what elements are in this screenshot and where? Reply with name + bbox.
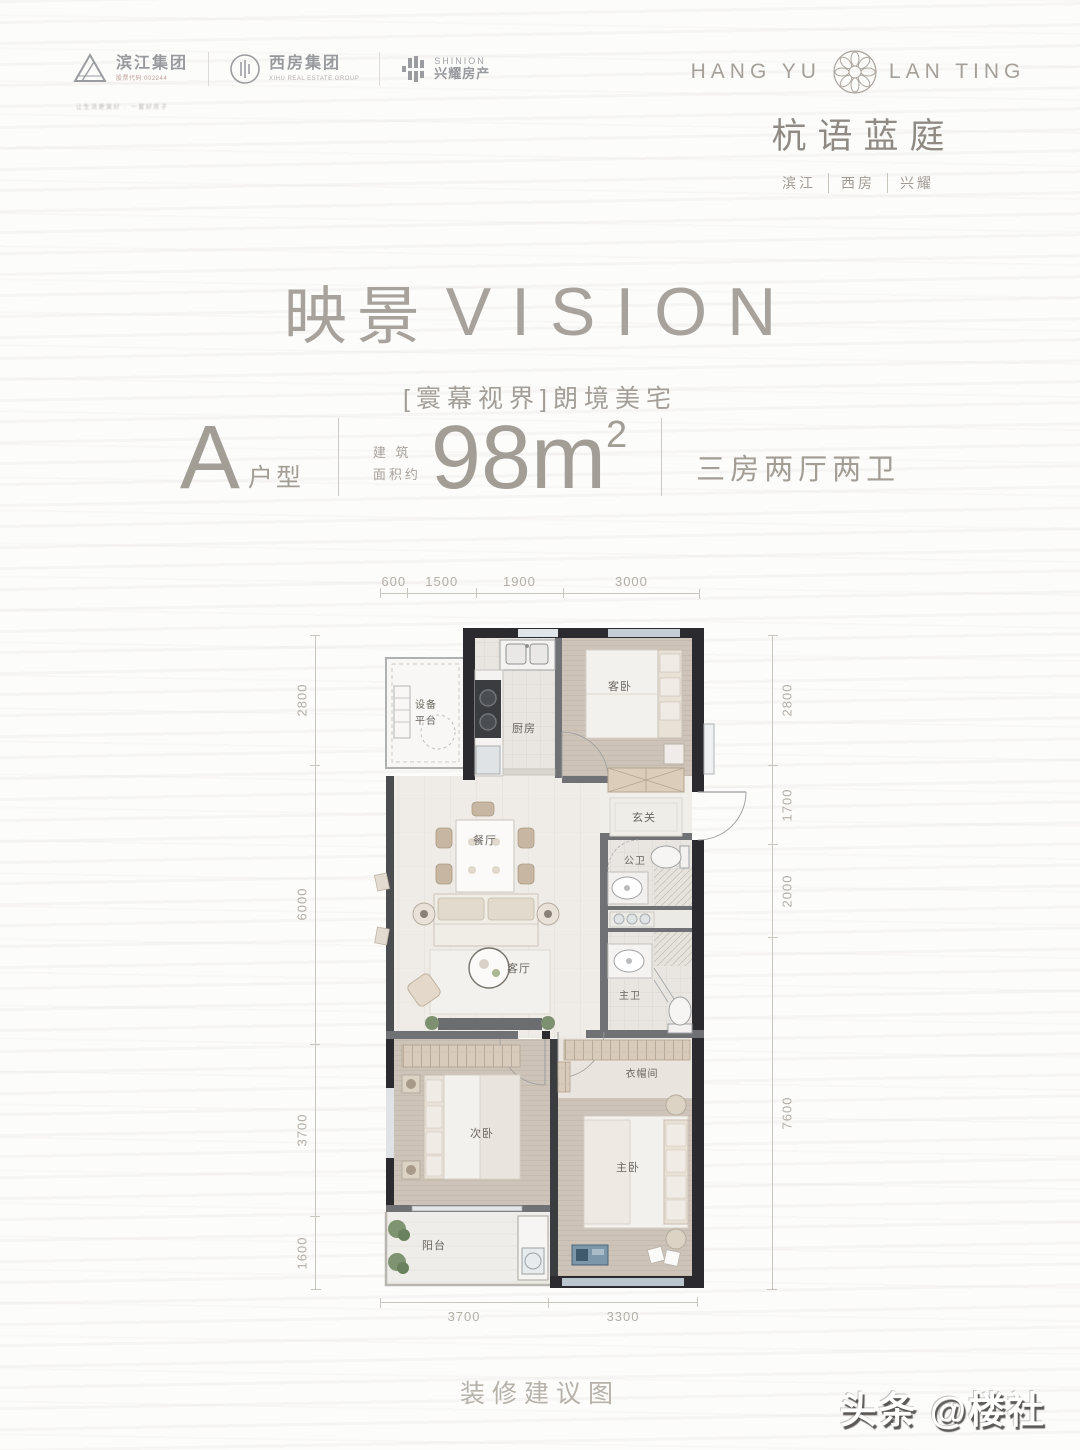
room-label-master-bath: 主卫 <box>619 990 641 1002</box>
dim-label: 3300 <box>548 1309 698 1324</box>
xifang-logo-icon <box>229 53 261 85</box>
brand-block: HANG YU LAN TING 杭语蓝庭 滨江 西房 兴耀 <box>688 48 1028 193</box>
room-label-living: 客厅 <box>507 961 531 975</box>
dim-segment: 3700 <box>288 1044 316 1216</box>
dim-label: 3700 <box>294 1113 309 1146</box>
dim-segment: 1600 <box>288 1216 316 1290</box>
dim-label: 1600 <box>294 1236 309 1269</box>
dim-segment: 3300 <box>548 1302 698 1330</box>
area-label-2: 面积约 <box>373 464 421 486</box>
brand-sub-item: 西房 <box>828 173 887 193</box>
dim-segment: 6000 <box>288 765 316 1044</box>
dim-segment: 1500 <box>407 566 476 594</box>
logo-divider <box>208 52 209 86</box>
logo-binjiang: 滨江集团 股票代码:002244 <box>72 52 188 86</box>
xifang-sub: XIHU REAL ESTATE GROUP <box>269 76 359 83</box>
brand-sub-item: 滨江 <box>770 173 828 193</box>
dim-label: 1500 <box>407 574 476 589</box>
room-label-closet: 衣帽间 <box>626 1067 659 1080</box>
watermark: 头条 @楼社 <box>840 1380 1046 1434</box>
dim-segment: 1700 <box>772 765 800 844</box>
logo-divider <box>379 52 380 86</box>
brand-sub-item: 兴耀 <box>887 173 946 193</box>
room-label-balcony: 阳台 <box>422 1238 446 1252</box>
room-label-equipment-1: 设备 <box>415 698 437 711</box>
dim-label: 6000 <box>294 888 309 921</box>
dim-segment: 3700 <box>380 1302 548 1330</box>
unit-type: A 户型 <box>180 422 304 496</box>
hero-title-en: VISION <box>446 273 797 351</box>
dim-label: 3700 <box>380 1309 548 1324</box>
unit-type-letter: A <box>180 422 240 496</box>
binjiang-tagline: 让生活更美好 · 一套好房子 <box>76 102 168 111</box>
xifang-name: 西房集团 <box>269 55 359 73</box>
dim-label: 1700 <box>779 788 794 821</box>
room-label-entry: 玄关 <box>632 810 656 824</box>
spec-row: A 户型 建 筑 面积约 98m 2 三房两厅两卫 <box>0 418 1080 496</box>
room-label-master-bedroom: 主卧 <box>616 1161 640 1174</box>
dim-chain-bottom: 37003300 <box>380 1302 698 1330</box>
unit-layout: 三房两厅两卫 <box>696 446 900 488</box>
binjiang-name: 滨江集团 <box>116 55 188 73</box>
dim-segment: 2000 <box>772 844 800 937</box>
dim-label: 2800 <box>779 684 794 717</box>
dim-segment: 3000 <box>563 566 700 594</box>
logo-shinion: SHINION 兴耀房产 <box>400 54 490 84</box>
room-label-public-bath: 公卫 <box>624 856 646 867</box>
room-label-equipment-2: 平台 <box>415 714 437 727</box>
spec-divider <box>338 418 339 496</box>
room-label-guest-bedroom: 客卧 <box>608 679 632 693</box>
area-sup: 2 <box>606 416 627 454</box>
poster: { "page": { "caption": "装修建议图", "waterma… <box>0 0 1080 1450</box>
developer-logos: 滨江集团 股票代码:002244 西房集团 XIHU REAL ESTATE G… <box>72 52 490 86</box>
equipment-platform <box>386 658 465 768</box>
room-label-dining: 餐厅 <box>473 833 497 847</box>
unit-type-label: 户型 <box>248 458 304 494</box>
shinion-sub: 兴耀房产 <box>434 67 490 82</box>
hero: 映景 VISION [寰幕视界]朗境美宅 <box>0 266 1080 415</box>
dim-label: 600 <box>380 574 407 589</box>
dim-segment: 7600 <box>772 937 800 1290</box>
dim-label: 7600 <box>779 1097 794 1130</box>
room-label-second-bedroom: 次卧 <box>470 1126 494 1140</box>
floor-plan: 设备 平台 厨房 客卧 玄关 餐厅 公卫 客厅 主卫 次卧 衣帽间 主卧 阳台 <box>372 628 752 1288</box>
floor-plan-svg: 设备 平台 厨房 客卧 玄关 餐厅 公卫 客厅 主卫 次卧 衣帽间 主卧 阳台 <box>372 628 752 1288</box>
dim-label: 3000 <box>563 574 700 589</box>
dim-label: 2000 <box>779 874 794 907</box>
dim-chain-top: 600150019003000 <box>380 566 700 594</box>
brand-cn: 杭语蓝庭 <box>688 108 1028 159</box>
area-label-1: 建 筑 <box>373 442 421 464</box>
dim-chain-right: 2800170020007600 <box>772 635 800 1290</box>
rosette-icon <box>831 48 879 96</box>
area-value: 98m <box>431 422 606 496</box>
logo-xifang: 西房集团 XIHU REAL ESTATE GROUP <box>229 53 359 85</box>
washer-nook <box>610 912 654 927</box>
dim-chain-left: 2800600037001600 <box>288 635 316 1290</box>
dim-label: 1900 <box>476 574 563 589</box>
dim-segment: 2800 <box>772 635 800 765</box>
dim-label: 2800 <box>294 684 309 717</box>
brand-latin-left: HANG YU <box>691 60 821 84</box>
brand-sub: 滨江 西房 兴耀 <box>688 173 1028 193</box>
dim-segment: 600 <box>380 566 407 594</box>
shinion-logo-icon <box>400 54 426 84</box>
room-label-kitchen: 厨房 <box>512 722 536 735</box>
spec-divider <box>661 418 662 496</box>
hero-title-cn: 映景 <box>284 266 430 357</box>
unit-area: 建 筑 面积约 98m 2 <box>373 422 627 496</box>
dim-segment: 2800 <box>288 635 316 765</box>
binjiang-logo-icon <box>72 52 108 86</box>
dim-segment: 1900 <box>476 566 563 594</box>
entry <box>608 768 746 840</box>
binjiang-sub: 股票代码:002244 <box>116 76 188 83</box>
brand-latin-right: LAN TING <box>889 60 1025 84</box>
